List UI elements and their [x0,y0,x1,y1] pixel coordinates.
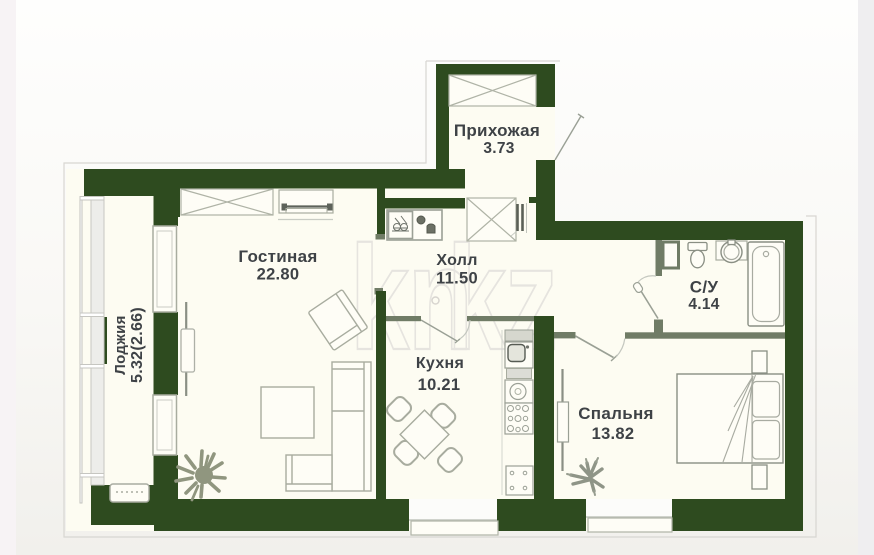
svg-text:С/У: С/У [690,278,719,297]
svg-text:Прихожая: Прихожая [454,121,540,140]
svg-text:Спальня: Спальня [578,404,654,423]
svg-text:13.82: 13.82 [592,425,635,443]
svg-text:4.14: 4.14 [688,296,719,313]
svg-text:Кухня: Кухня [416,355,464,372]
svg-text:22.80: 22.80 [257,266,300,284]
svg-text:10.21: 10.21 [418,376,461,394]
svg-text:Лоджия: Лоджия [112,315,129,374]
svg-text:5.32(2.66): 5.32(2.66) [129,307,146,383]
svg-text:3.73: 3.73 [483,140,514,157]
svg-text:Холл: Холл [436,252,477,269]
svg-text:11.50: 11.50 [436,270,478,288]
svg-text:Гостиная: Гостиная [238,247,317,266]
